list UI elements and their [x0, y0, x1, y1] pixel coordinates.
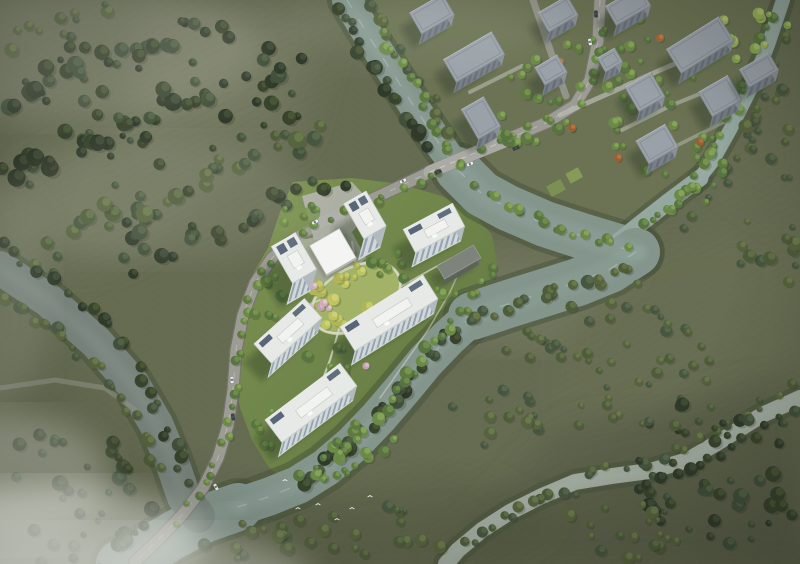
aerial-rendering — [0, 0, 800, 564]
masterplan-rendering-canvas — [0, 0, 800, 564]
fog-and-vignette — [0, 0, 800, 564]
